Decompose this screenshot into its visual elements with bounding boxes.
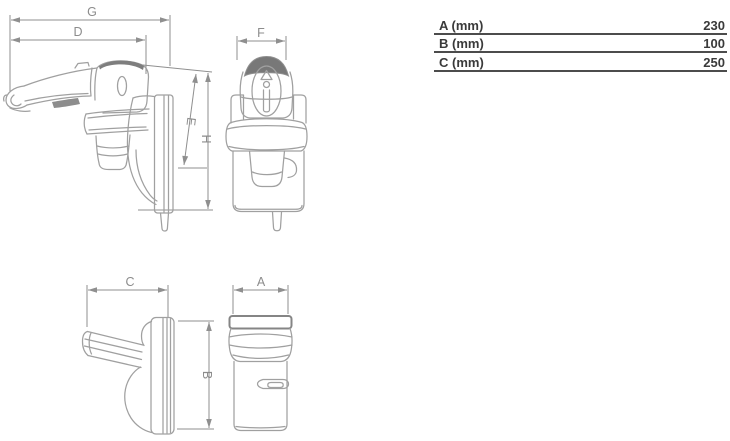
spec-label-c: C (mm) bbox=[434, 55, 484, 70]
arrowhead-icon bbox=[276, 38, 285, 44]
spec-value-c: 250 bbox=[703, 55, 727, 70]
bottom-view: A bbox=[229, 275, 292, 431]
dimension-label-a: A bbox=[257, 275, 266, 289]
cap-shade bbox=[99, 61, 144, 70]
arrowhead-icon bbox=[11, 17, 20, 23]
barrel-joint bbox=[90, 68, 92, 96]
handle-top bbox=[88, 332, 144, 346]
side-view: G D E H bbox=[4, 5, 213, 231]
arrowhead-icon bbox=[206, 419, 212, 428]
bracket-top bbox=[133, 96, 154, 98]
bracket-inner bbox=[136, 150, 157, 201]
spec-label-a: A (mm) bbox=[434, 18, 483, 33]
inner-body-seam bbox=[253, 172, 282, 175]
collar-inner bbox=[229, 147, 304, 150]
hanger-slot bbox=[118, 77, 127, 96]
arrowhead-icon bbox=[160, 17, 169, 23]
dimension-label-c: C bbox=[125, 275, 134, 289]
power-cord bbox=[161, 213, 169, 231]
handle-end bbox=[83, 332, 89, 356]
wall-plate-bar bbox=[230, 316, 292, 329]
motor-seam bbox=[98, 154, 128, 156]
head-seam bbox=[241, 97, 292, 99]
barrel-top bbox=[24, 68, 97, 86]
dimension-label-h: H bbox=[199, 134, 213, 143]
motor-bottom bbox=[99, 163, 127, 170]
spec-row-a: A (mm) 230 bbox=[434, 16, 727, 35]
technical-drawing: G D E H bbox=[0, 0, 430, 441]
head-outline bbox=[97, 61, 149, 113]
body-top-curve bbox=[142, 322, 152, 346]
holder-base-inner bbox=[235, 206, 302, 210]
holder-base bbox=[233, 151, 304, 212]
arrowhead-icon bbox=[206, 322, 212, 331]
arrowhead-icon bbox=[158, 287, 167, 293]
collar-end bbox=[84, 114, 87, 134]
handle-line bbox=[85, 346, 142, 360]
arrowhead-icon bbox=[11, 37, 20, 43]
barrel-tab bbox=[75, 63, 89, 69]
arrowhead-icon bbox=[278, 287, 287, 293]
body-outline bbox=[234, 362, 287, 431]
barrel-line bbox=[229, 345, 292, 348]
hairdryer-front-outline bbox=[226, 57, 307, 231]
hanger-oval bbox=[252, 66, 281, 116]
arrowhead-icon bbox=[205, 73, 211, 82]
collar-inner bbox=[89, 127, 146, 130]
switch-inner bbox=[268, 383, 283, 388]
arrowhead-icon bbox=[182, 156, 188, 165]
handle-line bbox=[85, 339, 142, 352]
collar-bottom bbox=[87, 130, 148, 134]
collar-inner bbox=[228, 126, 306, 129]
top-view: C B bbox=[83, 275, 215, 434]
collar-inner bbox=[88, 114, 147, 119]
bracket-top-outline bbox=[83, 318, 175, 435]
holder-wing-right bbox=[294, 95, 307, 123]
front-view: F bbox=[226, 26, 307, 231]
motor-left bbox=[96, 136, 99, 163]
dimension-label-d: D bbox=[73, 25, 82, 39]
body-side-curve bbox=[125, 367, 152, 433]
barrel-line bbox=[233, 355, 289, 358]
dimension-diagram-page: G D E H bbox=[0, 0, 730, 441]
motor-seam bbox=[97, 146, 129, 148]
power-cord bbox=[273, 212, 282, 231]
inner-body bbox=[250, 151, 285, 187]
arrowhead-icon bbox=[88, 287, 97, 293]
arrowhead-icon bbox=[136, 37, 145, 43]
body-bottom-inner bbox=[236, 427, 285, 428]
spec-value-b: 100 bbox=[703, 36, 727, 51]
head-left-edge bbox=[95, 68, 97, 100]
dimension-label-g: G bbox=[87, 5, 97, 19]
spec-value-a: 230 bbox=[703, 18, 727, 33]
collar-band bbox=[226, 119, 307, 151]
dimension-label-f: F bbox=[257, 26, 265, 40]
hairdryer-side-outline bbox=[4, 61, 173, 231]
barrel-line bbox=[229, 334, 292, 337]
hanger-slot bbox=[264, 90, 270, 112]
nozzle-inner bbox=[11, 95, 21, 106]
arrowhead-icon bbox=[234, 287, 243, 293]
bracket-hook bbox=[285, 158, 297, 178]
handle-end-inner bbox=[89, 333, 91, 354]
spec-row-b: B (mm) 100 bbox=[434, 35, 727, 54]
arrowhead-icon bbox=[238, 38, 247, 44]
spec-row-c: C (mm) 250 bbox=[434, 53, 727, 72]
arrowhead-icon bbox=[192, 74, 198, 83]
dimension-label-b: B bbox=[200, 371, 214, 379]
spec-table: A (mm) 230 B (mm) 100 C (mm) 250 bbox=[434, 16, 727, 72]
holder-bottom-outline bbox=[229, 316, 292, 431]
spec-label-b: B (mm) bbox=[434, 36, 484, 51]
hanger-dot bbox=[264, 82, 270, 88]
dimension-label-e: E bbox=[184, 116, 199, 126]
arrowhead-icon bbox=[205, 200, 211, 209]
